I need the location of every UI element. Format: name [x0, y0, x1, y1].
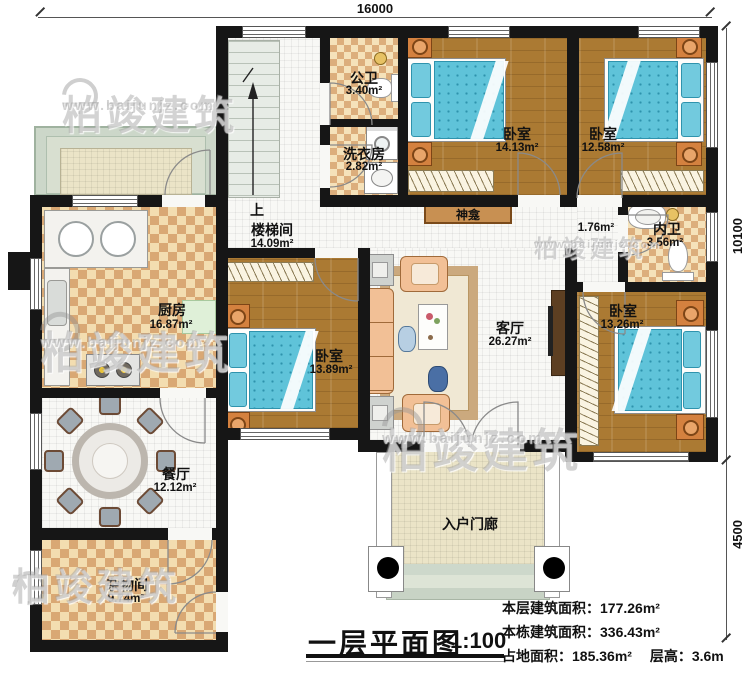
porch-floor	[392, 452, 544, 564]
dim-tick	[705, 7, 715, 17]
nightstand	[676, 142, 702, 166]
door-gap	[577, 195, 622, 207]
coffee-table	[418, 304, 448, 350]
door-gap	[320, 145, 330, 188]
stats-line3b-value: 3.6m	[692, 648, 724, 664]
room-name-dining: 餐厅	[162, 464, 190, 484]
stats-line3-label: 占地面积：	[502, 648, 572, 664]
dim-right-lower-label: 4500	[730, 520, 745, 549]
drawing-scale: 1:100	[450, 628, 506, 654]
porch-steps	[386, 562, 550, 600]
wall	[565, 248, 577, 462]
door-gap	[320, 83, 330, 125]
nightstand	[676, 414, 704, 440]
stats-line-2: 本栋建筑面积：336.43m²	[502, 622, 660, 642]
wall	[216, 26, 228, 652]
room-area-stairwell: 14.09m²	[251, 238, 294, 250]
floor-plan: 16000 10100 4500 公卫 3.40m² 洗衣房 2.82m² 卧室…	[0, 0, 750, 678]
watermark-logo-icon	[55, 71, 106, 122]
door-gap	[162, 195, 205, 207]
door-gap	[160, 388, 206, 398]
wall	[618, 252, 628, 282]
bed-bedroom3	[224, 328, 316, 412]
kitchen-basin	[100, 221, 136, 257]
water-heater-icon	[374, 52, 387, 65]
window	[72, 195, 138, 207]
door-gap	[518, 195, 560, 207]
room-name-bedroom3: 卧室	[315, 346, 343, 366]
toilet-tank	[662, 272, 694, 281]
room-name-bedroom4: 卧室	[609, 301, 637, 321]
stove	[86, 354, 140, 386]
title-underline-thick	[306, 654, 504, 658]
room-name-storage: 杂物间	[106, 575, 148, 595]
room-name-living: 客厅	[496, 318, 524, 338]
bed-bedroom1	[406, 58, 506, 142]
person-figure	[398, 326, 416, 352]
window	[30, 413, 42, 470]
room-area-bedroom4: 13.26m²	[601, 319, 644, 331]
nightstand	[676, 300, 704, 326]
stats-line1-value: 177.26m²	[600, 600, 660, 616]
window	[448, 26, 510, 38]
wall	[358, 248, 370, 440]
room-area-dining: 12.12m²	[154, 482, 197, 494]
room-area-kitchen: 16.87m²	[150, 319, 193, 331]
porch-pillar-left-dot	[377, 557, 399, 579]
room-area-ensuite: 3.56m²	[647, 237, 683, 249]
armchair	[400, 256, 448, 292]
person-figure	[428, 366, 448, 392]
stairs-up-label: 上	[250, 200, 264, 220]
stats-line3-value: 185.36m²	[572, 648, 632, 664]
dining-chair	[99, 507, 121, 527]
room-name-stairwell: 楼梯间	[251, 220, 293, 240]
room-area-laundry: 2.82m²	[346, 161, 382, 173]
watermark-url: www.baijunjz.com	[62, 96, 215, 116]
door-gap	[618, 215, 628, 252]
hallway-pocket-floor	[577, 207, 618, 282]
door-gap	[168, 528, 212, 540]
wall	[30, 640, 228, 652]
dim-tick	[35, 7, 45, 17]
shrine-label: 神龛	[456, 206, 480, 223]
tv-cabinet	[551, 290, 566, 376]
stats-line2-value: 336.43m²	[600, 624, 660, 640]
dim-line-top	[38, 17, 712, 18]
room-area-storage: 9.74m²	[108, 593, 144, 605]
dim-top-label: 16000	[357, 1, 393, 16]
window	[240, 428, 330, 440]
kitchen-sink	[47, 280, 67, 326]
room-name-ensuite: 内卫	[653, 219, 681, 239]
wall	[398, 26, 408, 207]
room-name-bedroom1: 卧室	[503, 124, 531, 144]
wall	[567, 26, 579, 207]
window	[242, 26, 306, 38]
title-underline-thin	[306, 661, 504, 662]
window	[30, 550, 42, 605]
room-area-bedroom2: 12.58m²	[582, 142, 625, 154]
window	[638, 26, 700, 38]
dining-table-center	[92, 443, 128, 479]
tv	[548, 306, 553, 356]
stats-line-3: 占地面积：185.36m² 层高：3.6m	[502, 646, 724, 666]
dining-chair	[44, 450, 64, 472]
room-area-bedroom1: 14.13m²	[496, 142, 539, 154]
wall	[618, 207, 628, 215]
door-gap	[216, 592, 228, 632]
hallway-area-label: 1.76m²	[578, 222, 614, 234]
door-gap	[315, 248, 358, 258]
room-area-bedroom3: 13.89m²	[310, 364, 353, 376]
stats-line1-label: 本层建筑面积：	[502, 600, 600, 616]
wall	[320, 119, 408, 127]
armchair	[402, 394, 450, 432]
room-area-living: 26.27m²	[489, 336, 532, 348]
nightstand	[406, 142, 432, 166]
room-name-bedroom2: 卧室	[589, 124, 617, 144]
stats-line-1: 本层建筑面积：177.26m²	[502, 598, 660, 618]
bed-bedroom4	[614, 326, 706, 414]
room-name-kitchen: 厨房	[158, 300, 186, 320]
wardrobe-bedroom3	[226, 262, 314, 282]
window	[30, 258, 42, 310]
window	[706, 212, 718, 262]
kitchen-basin	[58, 221, 94, 257]
stats-line3b-label: 层高：	[636, 648, 692, 664]
room-area-public-bath: 3.40m²	[346, 85, 382, 97]
door-gap	[424, 440, 520, 452]
dining-chair	[99, 395, 121, 415]
door-gap	[583, 282, 625, 292]
window	[706, 62, 718, 148]
bed-bedroom2	[604, 58, 704, 142]
terrace-deck	[60, 148, 192, 195]
room-name-porch: 入户门廊	[442, 514, 498, 534]
stats-line2-label: 本栋建筑面积：	[502, 624, 600, 640]
window	[706, 330, 718, 418]
dim-line-right	[726, 28, 727, 640]
wardrobe-bedroom4	[579, 296, 599, 446]
dim-right-upper-label: 10100	[730, 218, 745, 254]
porch-pillar-right-dot	[543, 557, 565, 579]
window	[593, 452, 689, 462]
wardrobe-bedroom2	[620, 170, 704, 192]
staircase	[228, 40, 280, 198]
wardrobe-bedroom1	[408, 170, 494, 192]
